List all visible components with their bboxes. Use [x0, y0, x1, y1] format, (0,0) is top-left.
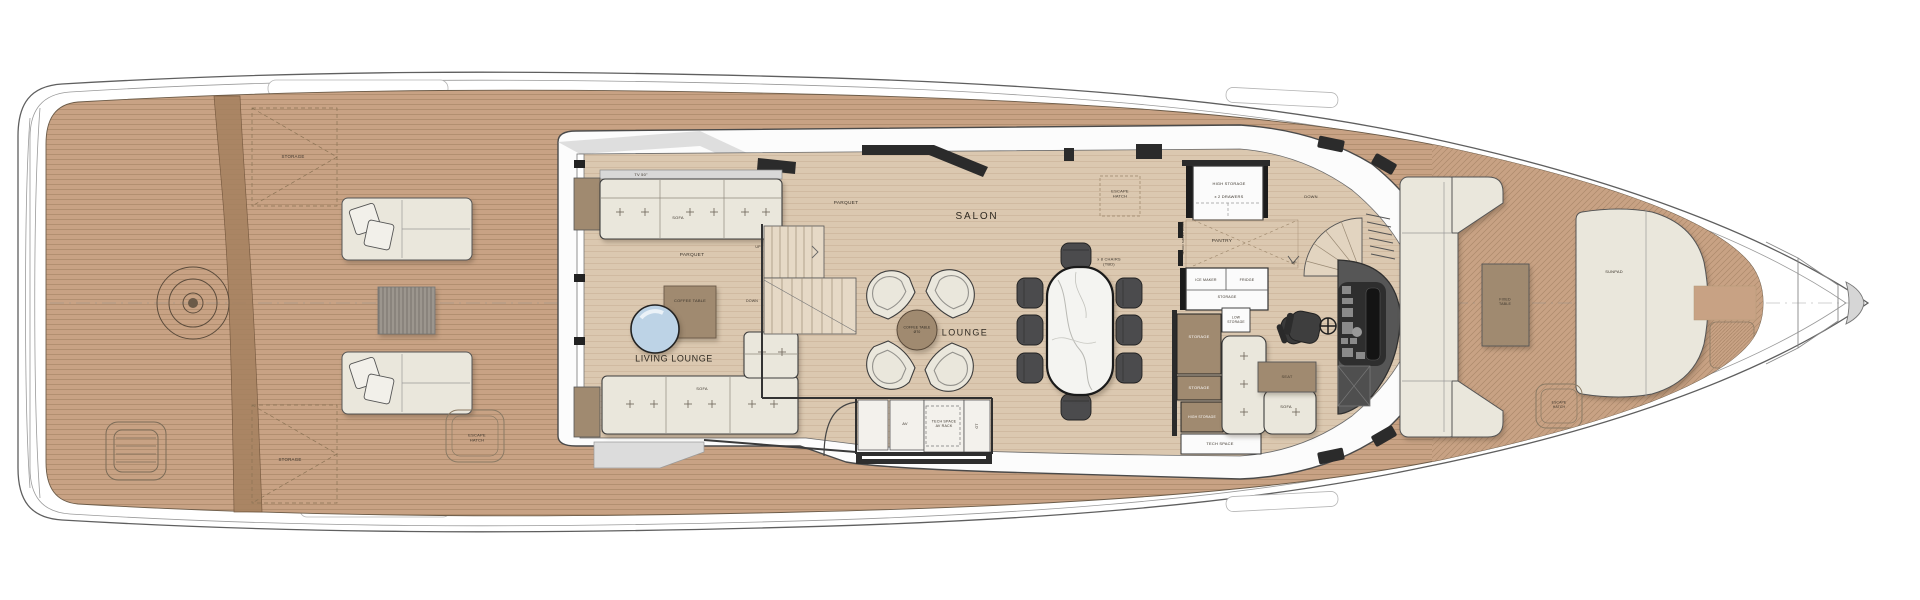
bow-deck-strip — [1694, 286, 1756, 320]
round-coffee-table — [897, 310, 937, 350]
sun-lounger-port — [342, 198, 472, 260]
tv-cabinet — [600, 170, 782, 179]
sofa-forward — [600, 179, 782, 239]
high-storage-cabinet — [1181, 402, 1223, 432]
side-cabinet-aft — [574, 387, 600, 437]
seat-table — [1258, 362, 1316, 392]
tech-space-cabinet — [1181, 434, 1261, 454]
storage-cabinet — [1177, 376, 1221, 400]
yacht-main-deck-plan: STORAGE STORAGE ESCAPE HATCH TV 50" SOFA… — [0, 0, 1920, 600]
sunpad — [1576, 209, 1708, 397]
steering-wheel-icon — [1320, 318, 1336, 334]
low-storage — [1222, 308, 1250, 332]
storage-cabinet — [1177, 314, 1221, 374]
bow-table — [1482, 264, 1529, 346]
deck-mat — [378, 287, 435, 334]
sun-lounger-starboard — [342, 352, 472, 414]
helm-display — [1366, 288, 1380, 360]
appliance-block — [1186, 268, 1268, 310]
tech-cabinets — [856, 398, 992, 464]
galley-cabinet — [1193, 166, 1263, 220]
dining-table — [1047, 267, 1113, 395]
anchor-fitting — [1846, 282, 1864, 324]
side-cabinet — [574, 178, 600, 230]
deck-plan-drawing — [0, 0, 1920, 600]
